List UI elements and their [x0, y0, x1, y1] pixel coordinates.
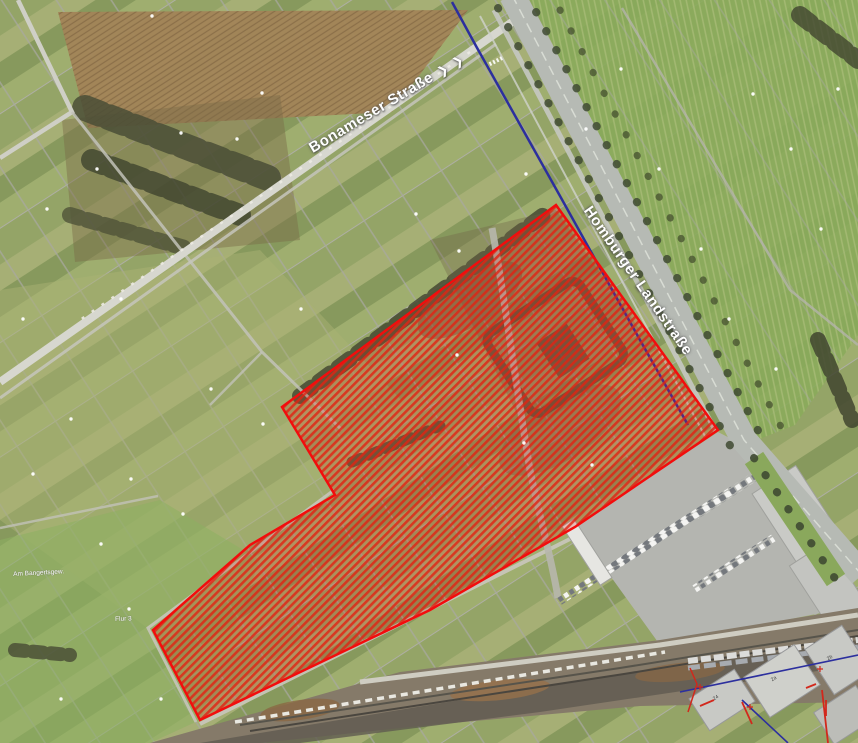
aerial-map-image: Bonameser Straße❯ ❯ Homburger Landstraße… — [0, 0, 858, 743]
aerial-map-canvas — [0, 0, 858, 743]
